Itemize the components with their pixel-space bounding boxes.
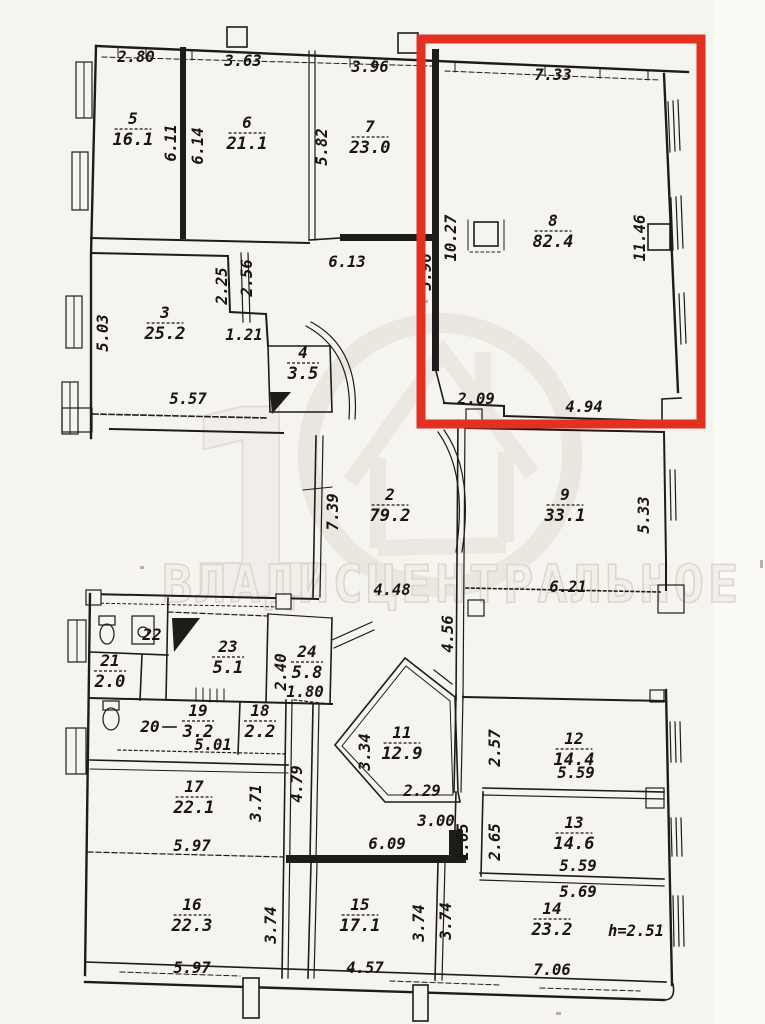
dimension-label: 3.74 — [410, 904, 428, 942]
room-number-label: 18 — [250, 701, 269, 720]
room-number-label: 24 — [296, 642, 316, 661]
dimension-label: 6.14 — [189, 127, 207, 164]
room-area-label: 12.9 — [382, 744, 423, 764]
dimension-label: 5.97 — [173, 837, 211, 855]
wall-thick — [180, 47, 186, 239]
room-number-label: 19 — [188, 701, 207, 720]
scanned-floorplan-page: 1 ВЛАДИСЦЕНТРАЛЬНОЕ — [0, 0, 765, 1024]
room-number-label: 11 — [392, 723, 411, 742]
room-number-label: 14 — [542, 899, 561, 918]
dimension-label: 5.03 — [94, 314, 112, 351]
dimension-label: 5.57 — [169, 390, 207, 408]
room-area-label: 3.5 — [287, 364, 319, 384]
dimension-label: 5.97 — [173, 959, 211, 977]
base-protrusion — [413, 985, 428, 1021]
room-area-label: 82.4 — [533, 232, 574, 252]
room-number-label: 3 — [159, 303, 170, 322]
wall-thick — [432, 49, 439, 371]
room-area-label: 14.6 — [554, 834, 595, 854]
room-number-label: 20 — [139, 717, 159, 736]
room-area-label: 17.1 — [340, 916, 381, 936]
room-area-label: 2.0 — [94, 672, 126, 692]
dimension-label: 5.33 — [635, 496, 653, 533]
room-number-label: 5 — [128, 109, 138, 128]
room-area-label: 5.8 — [292, 663, 323, 683]
dimension-label: 11.46 — [631, 215, 649, 262]
dimension-label: 1.65 — [454, 823, 472, 860]
dimension-label: 3.96 — [350, 58, 388, 76]
room-number-label: 4 — [298, 343, 308, 362]
dimension-label: 7.33 — [534, 66, 571, 84]
dimension-label: 7.06 — [533, 961, 570, 979]
dimension-label: 4.79 — [288, 765, 306, 802]
room-area-label: 22.3 — [171, 916, 213, 936]
wall-thick — [286, 855, 466, 863]
dimension-label: 2.65 — [486, 823, 504, 861]
dimension-label: h=2.51 — [608, 922, 664, 940]
room-area-label: 23.0 — [349, 138, 391, 158]
dimension-label: 3.74 — [262, 906, 280, 944]
dimension-label: 5.59 — [557, 764, 594, 782]
floorplan-svg: 1 ВЛАДИСЦЕНТРАЛЬНОЕ — [0, 0, 765, 1024]
base-protrusion — [243, 978, 259, 1018]
room-area-label: 33.1 — [544, 506, 586, 526]
column-symbol — [86, 590, 101, 605]
room-number-label: 2 — [384, 485, 395, 504]
room-number-label: 8 — [548, 211, 558, 230]
dimension-label: 1.21 — [225, 326, 262, 344]
room-number-label: 13 — [564, 813, 583, 832]
dimension-label: 4.48 — [373, 581, 410, 599]
room-number-label: 23 — [217, 637, 237, 656]
dimension-label: 5.59 — [559, 857, 596, 875]
dimension-label: 4.56 — [439, 615, 457, 652]
room-area-label: 23.2 — [531, 920, 573, 940]
dimension-label: 3.71 — [247, 784, 265, 822]
room-number-label: 9 — [560, 485, 570, 504]
room-number-label: 16 — [182, 895, 202, 914]
dimension-label: 6.21 — [549, 578, 586, 596]
room-number-label: 12 — [564, 729, 583, 748]
room-area-label: 79.2 — [370, 506, 411, 526]
dimension-label: 4.57 — [346, 959, 384, 977]
room-area-label: 2.2 — [244, 722, 276, 742]
dimension-label: 3.34 — [356, 733, 374, 771]
dimension-label: 2.57 — [486, 729, 504, 768]
room-area-label: 25.2 — [144, 324, 186, 344]
dimension-label: 6.13 — [328, 253, 365, 271]
dimension-label: 2.29 — [402, 782, 440, 800]
roof-protrusion — [227, 27, 247, 47]
dimension-label: 3.63 — [223, 52, 261, 70]
roof-protrusion — [398, 33, 418, 53]
room-number-label: 21 — [99, 651, 119, 670]
dimension-label: 3.74 — [437, 902, 455, 940]
room-number-label: 7 — [365, 117, 375, 136]
dimension-label: 2.80 — [116, 48, 154, 66]
dimension-label: 2.25 — [213, 267, 231, 305]
dimension-label: 5.01 — [194, 736, 231, 754]
dimension-label: 6.11 — [162, 124, 180, 161]
room-area-label: 16.1 — [113, 130, 154, 150]
room-area-label: 21.1 — [226, 134, 268, 154]
dimension-label: 1.80 — [286, 683, 323, 701]
room-number-label: 15 — [350, 895, 369, 914]
room-area-label: 5.1 — [213, 658, 244, 678]
dimension-label: 3.00 — [416, 812, 454, 830]
dimension-label: 5.69 — [559, 883, 596, 901]
dimension-label: 5.82 — [313, 128, 331, 165]
dimension-label: 2.09 — [456, 390, 494, 408]
dimension-label: 7.39 — [324, 493, 342, 530]
room-number-label: 22 — [141, 625, 161, 644]
scan-edge-strip — [714, 0, 765, 1024]
dimension-label: 6.09 — [368, 835, 405, 853]
room-number-label: 6 — [242, 113, 252, 132]
room-number-label: 17 — [184, 777, 204, 796]
column-symbol — [276, 594, 291, 609]
room-area-label: 22.1 — [173, 798, 215, 818]
dimension-label: 10.27 — [442, 214, 460, 261]
dimension-label: 2.56 — [238, 259, 256, 297]
dimension-label: 4.94 — [565, 398, 602, 416]
